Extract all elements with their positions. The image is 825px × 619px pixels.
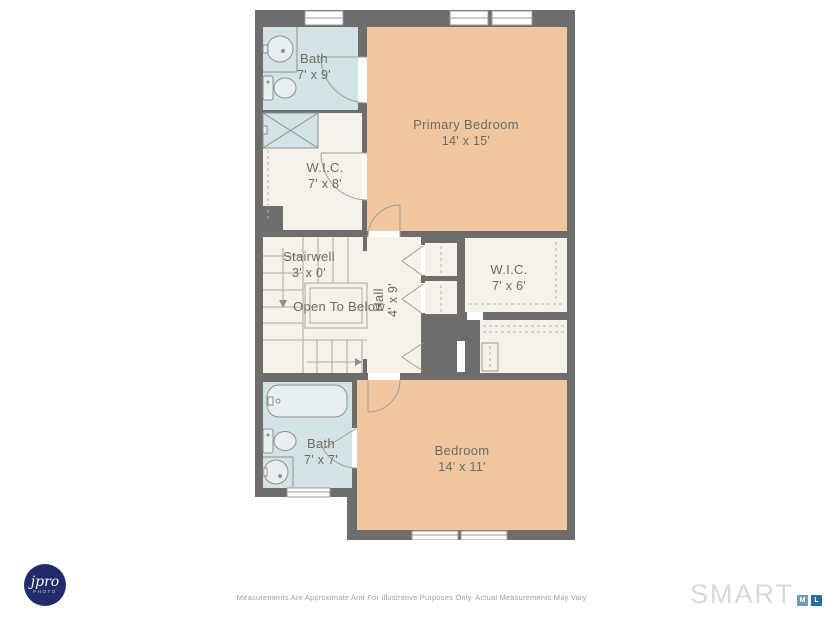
bathtub-fixture [267, 385, 347, 417]
photographer-logo-subtext: PHOTO [33, 589, 56, 594]
room-label-primary-bedroom: Primary Bedroom 14' x 15' [413, 117, 519, 149]
room-label-hall: Hall 4' x 9' [371, 283, 401, 317]
room-label-bedroom: Bedroom 14' x 11' [435, 443, 490, 475]
floor-plan-page: Bath 7' x 9' Primary Bedroom 14' x 15' W… [0, 0, 825, 619]
measurement-disclaimer: Measurements Are Approximate And For Ill… [237, 593, 588, 602]
toilet-fixture-bottom [263, 429, 296, 453]
photographer-logo-circle: jpro PHOTO [24, 564, 66, 606]
mls-block-l: L [811, 595, 822, 606]
photographer-logo: jpro PHOTO [22, 562, 82, 612]
photographer-logo-script: jpro [31, 576, 59, 588]
room-label-wic-top: W.I.C. 7' x 8' [306, 160, 343, 192]
room-label-wic-right: W.I.C. 7' x 6' [490, 262, 527, 294]
room-label-stairwell: Stairwell 3' x 0' [283, 249, 335, 281]
mls-wordmark: SMART [690, 583, 794, 606]
room-label-bath-bottom: Bath 7' x 7' [304, 436, 338, 468]
mls-logo: SMART M L S [690, 583, 825, 606]
toilet-fixture-top [263, 76, 296, 100]
mls-block-m: M [797, 595, 808, 606]
lower-closet-floor [480, 320, 567, 373]
room-label-bath-top: Bath 7' x 9' [297, 51, 331, 83]
